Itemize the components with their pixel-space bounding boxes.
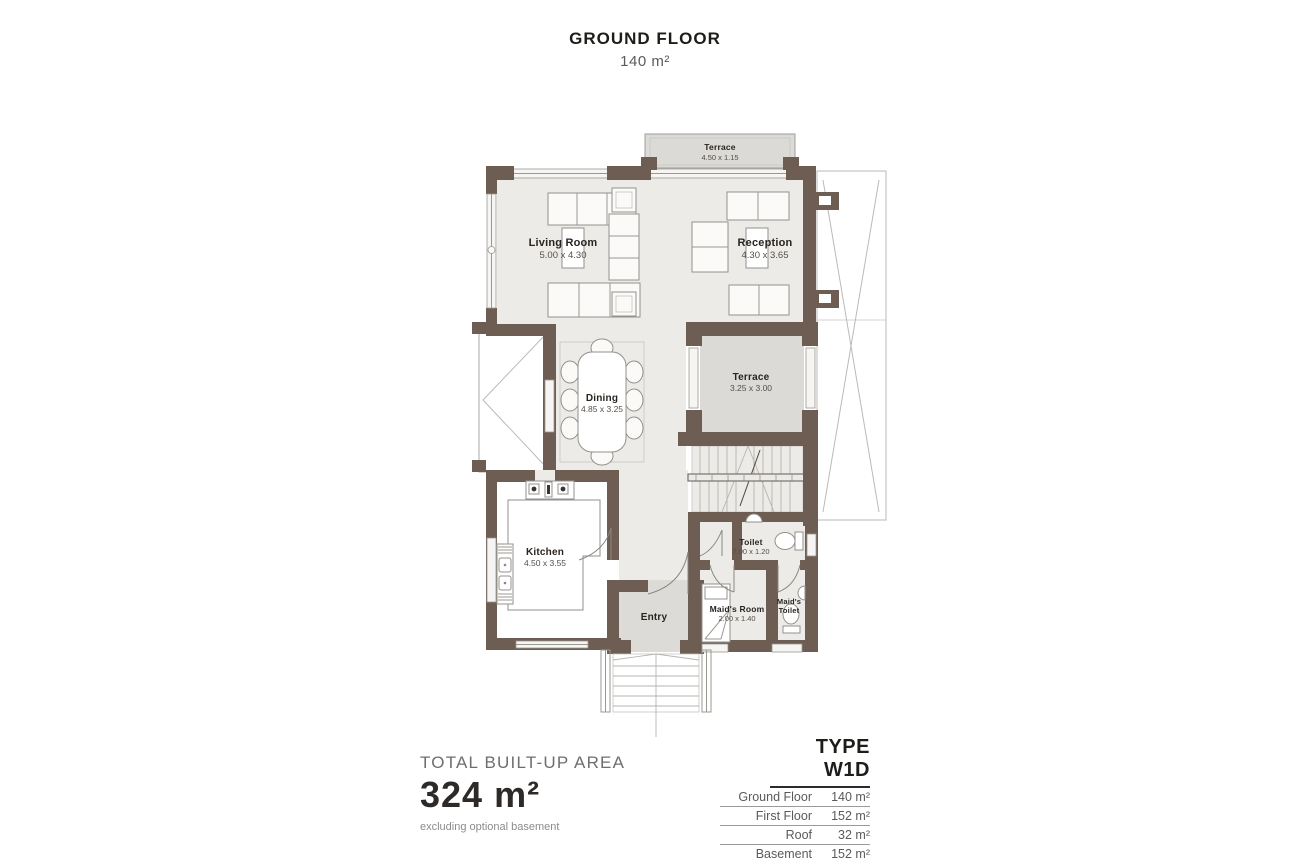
- svg-text:Toilet: Toilet: [739, 537, 762, 547]
- summary-heading: TOTAL BUILT-UP AREA: [420, 753, 625, 773]
- svg-text:Living Room: Living Room: [529, 237, 598, 249]
- reception-sofa-top: [727, 192, 789, 220]
- dining-west-window: [545, 380, 554, 432]
- living-sofa-side: [609, 214, 639, 280]
- svg-text:4.50 x 1.15: 4.50 x 1.15: [701, 153, 738, 162]
- svg-text:Dining: Dining: [586, 393, 618, 404]
- room-label-entry: Entry: [641, 612, 668, 623]
- reception-sofa-bottom: [729, 285, 789, 315]
- row-label: Ground Floor: [720, 790, 824, 804]
- floor-plan-drawing: Terrace 4.50 x 1.15 Living Room 5.00 x 4…: [0, 0, 1300, 867]
- row-label: Roof: [720, 828, 824, 842]
- table-row: Roof 32 m²: [720, 826, 870, 845]
- svg-text:4.85 x 3.25: 4.85 x 3.25: [581, 404, 623, 414]
- terrace-mid-left-window: [689, 348, 698, 408]
- row-label: First Floor: [720, 809, 824, 823]
- svg-text:Maid's Room: Maid's Room: [710, 604, 765, 614]
- row-value: 32 m²: [824, 828, 870, 842]
- room-label-maids-toilet: Maid's Toilet: [777, 597, 801, 615]
- svg-text:Kitchen: Kitchen: [526, 547, 564, 558]
- table-row: First Floor 152 m²: [720, 807, 870, 826]
- svg-text:Toilet: Toilet: [779, 606, 800, 615]
- summary-value: 324 m²: [420, 774, 625, 816]
- maids-room-door-opening: [710, 560, 734, 570]
- floor-area: 140 m²: [569, 53, 721, 70]
- floor-name: GROUND FLOOR: [569, 29, 721, 49]
- room-label-kitchen: Kitchen 4.50 x 3.55: [524, 547, 566, 568]
- total-area-summary: TOTAL BUILT-UP AREA 324 m² excluding opt…: [420, 753, 625, 833]
- entry-steps: [601, 650, 711, 737]
- svg-text:Entry: Entry: [641, 612, 668, 623]
- living-side-table-bottom: [612, 292, 636, 316]
- row-value: 140 m²: [824, 790, 870, 804]
- room-label-dining: Dining 4.85 x 3.25: [581, 393, 623, 414]
- table-row: Basement 152 m²: [720, 845, 870, 863]
- maids-toilet-bottom-window: [772, 644, 802, 652]
- living-side-table-top: [612, 188, 636, 212]
- reception-sofa-side: [692, 222, 728, 272]
- svg-text:4.50 x 3.55: 4.50 x 3.55: [524, 558, 566, 568]
- window-mullion: [488, 247, 495, 254]
- terrace-mid-right-window: [806, 348, 815, 408]
- svg-text:Maid's: Maid's: [777, 597, 801, 606]
- side-shaft: [472, 322, 549, 472]
- entry-door-opening: [648, 580, 688, 592]
- stair-handrail: [688, 474, 804, 481]
- hall-floor: [619, 470, 688, 592]
- stove-icon: [526, 481, 574, 499]
- svg-text:Terrace: Terrace: [704, 142, 736, 152]
- svg-text:5.00 x 4.30: 5.00 x 4.30: [539, 250, 586, 261]
- kitchen-sink: [497, 544, 513, 604]
- maids-toilet-door-opening: [778, 560, 800, 570]
- svg-text:3.25 x 3.00: 3.25 x 3.00: [730, 383, 772, 393]
- room-label-terrace-mid: Terrace 3.25 x 3.00: [730, 372, 772, 393]
- maids-room-bottom-window: [702, 644, 728, 652]
- toilet-right-window: [807, 534, 816, 556]
- toilet-icon: [775, 532, 803, 550]
- svg-text:2.00 x 1.40: 2.00 x 1.40: [718, 614, 755, 623]
- type-table-title: TYPE W1D: [770, 736, 870, 788]
- row-label: Basement: [720, 847, 824, 861]
- kitchen-door-opening: [535, 470, 555, 482]
- table-row: Ground Floor 140 m²: [720, 788, 870, 807]
- svg-text:4.30 x 3.65: 4.30 x 3.65: [741, 250, 788, 261]
- type-table: TYPE W1D Ground Floor 140 m² First Floor…: [720, 736, 870, 863]
- summary-note: excluding optional basement: [420, 821, 625, 833]
- pergola-outline: [813, 171, 886, 520]
- row-value: 152 m²: [824, 847, 870, 861]
- plan-title: GROUND FLOOR 140 m²: [569, 29, 721, 70]
- svg-text:2.00 x 1.20: 2.00 x 1.20: [732, 547, 769, 556]
- row-value: 152 m²: [824, 809, 870, 823]
- floor-plan-page: Terrace 4.50 x 1.15 Living Room 5.00 x 4…: [0, 0, 1300, 867]
- svg-text:Terrace: Terrace: [733, 372, 770, 383]
- kitchen-left-window: [487, 538, 496, 602]
- svg-text:Reception: Reception: [738, 237, 793, 249]
